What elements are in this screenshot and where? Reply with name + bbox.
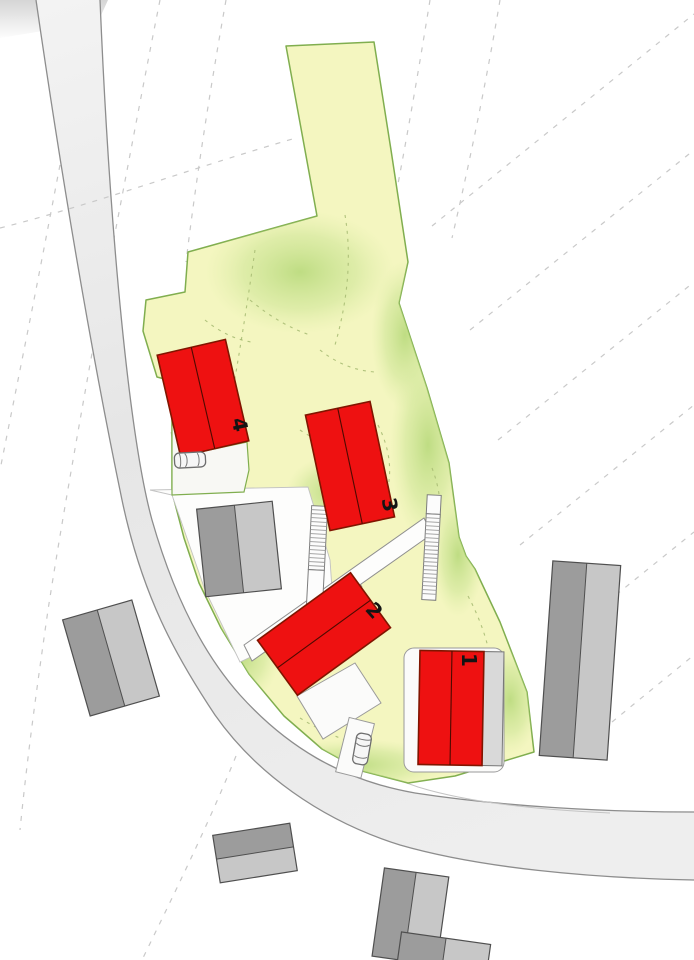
- car-icon: [174, 452, 206, 469]
- site-plan: 4 3 2 1: [0, 0, 694, 960]
- proposed-building-1: [418, 650, 484, 765]
- building-1-label: 1: [457, 653, 481, 667]
- existing-building: [539, 561, 620, 760]
- annex-building-1: [482, 652, 504, 766]
- existing-building: [197, 501, 282, 596]
- site-plan-canvas: 4 3 2 1: [0, 0, 694, 960]
